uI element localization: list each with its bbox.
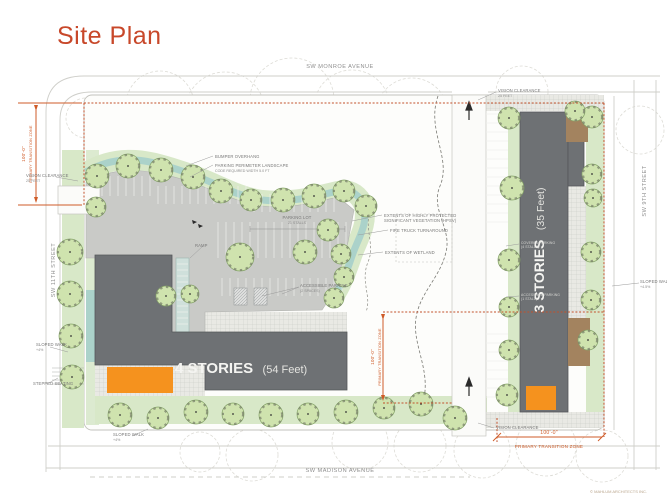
street-east-label: SW 9TH STREET [642,165,648,216]
tree-center [282,199,284,201]
tree [498,107,520,129]
tree-center [195,411,197,413]
hpsv-label-2: SIGNIFICANT VEGETATION (HPSV) [384,218,457,223]
tree [324,288,344,308]
tree [271,188,295,212]
tree-center [95,206,97,208]
vision-clearance-north: VISION CLEARANCE [498,88,541,93]
tree-center [70,335,72,337]
tree-center [587,339,589,341]
tree-center [508,306,510,308]
sloped-walk-south: SLOPED WALK [113,432,144,437]
wetland-label: EXTENTS OF WETLAND [385,250,435,255]
street-north-label: SW MONROE AVENUE [306,64,374,70]
tree [181,285,199,303]
tree-center [313,195,315,197]
tree-center [343,276,345,278]
tree [499,297,519,317]
tree-center [383,407,385,409]
sloped-walk-south-pct: +4% [113,438,121,442]
tree [86,197,106,217]
tree-center [96,175,98,177]
street-south-label: SW MADISON AVENUE [305,468,374,474]
tree [240,189,262,211]
accessible-stall [254,288,267,305]
tree [582,164,602,184]
tree [57,281,83,307]
vision-clearance-west: VISION CLEARANCE [26,173,69,178]
tree [85,164,109,188]
copyright-label: © MAHLUM ARCHITECTS INC. [590,489,647,494]
tree-center [69,251,71,253]
tree-center [511,187,513,189]
site-plan-drawing: 4 STORIES (54 Feet) 3 STORIES (35 Feet) [0,0,667,500]
east-building-entry [526,386,556,410]
tree [496,384,518,406]
street-west-label: SW 11TH STREET [51,243,57,298]
tree-center [454,417,456,419]
mid-zone-value: 100'-0" [370,349,375,365]
south-zone-label: PRIMARY TRANSITION ZONE [515,444,583,449]
ramp-label: RAMP [195,243,208,248]
sloped-walk-east-pct: +4.5% [640,285,651,289]
stepped-seating-label: STEPPED SEATING [33,381,73,386]
accessible-parking-east-count: (1 STALL) [521,297,537,301]
tree-center [365,205,367,207]
tree-center [160,169,162,171]
tree [293,240,317,264]
tree-center [508,349,510,351]
parking-lot-stalls: 21 STALLS [288,221,307,225]
tree-center [333,297,335,299]
tree [498,249,520,271]
canopy-outline [226,429,278,481]
tree-center [508,117,510,119]
bumper-overhang-label: BUMPER OVERHANG [215,154,260,159]
tree-center [304,251,306,253]
tree [184,400,208,424]
tree [149,158,173,182]
vision-clearance-north-sub: 25 FEET [498,94,513,98]
tree-center [157,417,159,419]
canopy-outline [576,430,628,482]
east-building-wing [568,140,584,186]
tree [331,244,351,264]
tree-center [590,251,592,253]
tree-center [591,116,593,118]
tree-center [192,176,194,178]
tree [57,239,83,265]
tree [565,101,585,121]
tree [181,165,205,189]
vision-clearance-south: VISION CLEARANCE [496,425,539,430]
tree [156,286,176,306]
tree-center [340,253,342,255]
tree [209,179,233,203]
tree-center [250,199,252,201]
court-walk-paving [205,312,347,332]
tree-center [327,229,329,231]
tree-center [591,173,593,175]
tree [147,407,169,429]
tree [578,330,598,350]
tree-center [508,259,510,261]
west-zone-value: 100'-0" [21,146,26,162]
tree-center [69,293,71,295]
tree [500,176,524,200]
tree-center [127,165,129,167]
tree [443,406,467,430]
tree-center [590,299,592,301]
sloped-walk-west: SLOPED WALK [36,342,67,347]
tree [373,397,395,419]
tree-center [343,190,345,192]
tree [581,290,601,310]
tree-center [239,256,241,258]
tree [226,243,254,271]
perimeter-landscape-sub: CODE REQUIRED WIDTH 5.0 FT [215,169,270,173]
tree-center [119,414,121,416]
vision-clearance-west-sub: 25 FEET [26,179,41,183]
site-plan-page: Site Plan [0,0,667,500]
tree [499,340,519,360]
sloped-walk-east: SLOPED WALK [640,279,667,284]
tree-center [345,411,347,413]
accessible-stall [234,288,247,305]
tree [333,180,355,202]
sloped-walk-west-pct: +4% [36,348,44,352]
canopy-outline [180,432,220,472]
tree-center [220,190,222,192]
tree [409,392,433,416]
tree [259,403,283,427]
canopy-outline [616,106,664,154]
tree [317,219,339,241]
tree-center [165,295,167,297]
tree-center [506,394,508,396]
accessible-parking-label: ACCESSIBLE PARKING [300,283,348,288]
tree [581,242,601,262]
tree-center [71,376,73,378]
tree [116,154,140,178]
accessible-parking-count: (2 SPACES) [300,289,320,293]
tree [297,403,319,425]
tree [355,195,377,217]
tree-center [574,110,576,112]
tree [222,403,244,425]
parking-lot-label: PARKING LOT [283,215,312,220]
tree-center [270,414,272,416]
tree-center [232,413,234,415]
tree [584,189,602,207]
tree [108,403,132,427]
fire-truck-label: FIRE TRUCK TURNAROUND [390,228,448,233]
west-building-entry [107,367,173,393]
covered-parking-count: (4 STALLS) [521,245,539,249]
south-zone-value: 100'-0" [540,430,558,436]
perimeter-landscape-label: PARKING PERIMETER LANDSCAPE [215,163,288,168]
tree [302,184,326,208]
tree [334,400,358,424]
mid-zone-label: PRIMARY TRANSITION ZONE [378,328,382,386]
tree-center [307,413,309,415]
tree-center [592,197,594,199]
tree-center [189,293,191,295]
